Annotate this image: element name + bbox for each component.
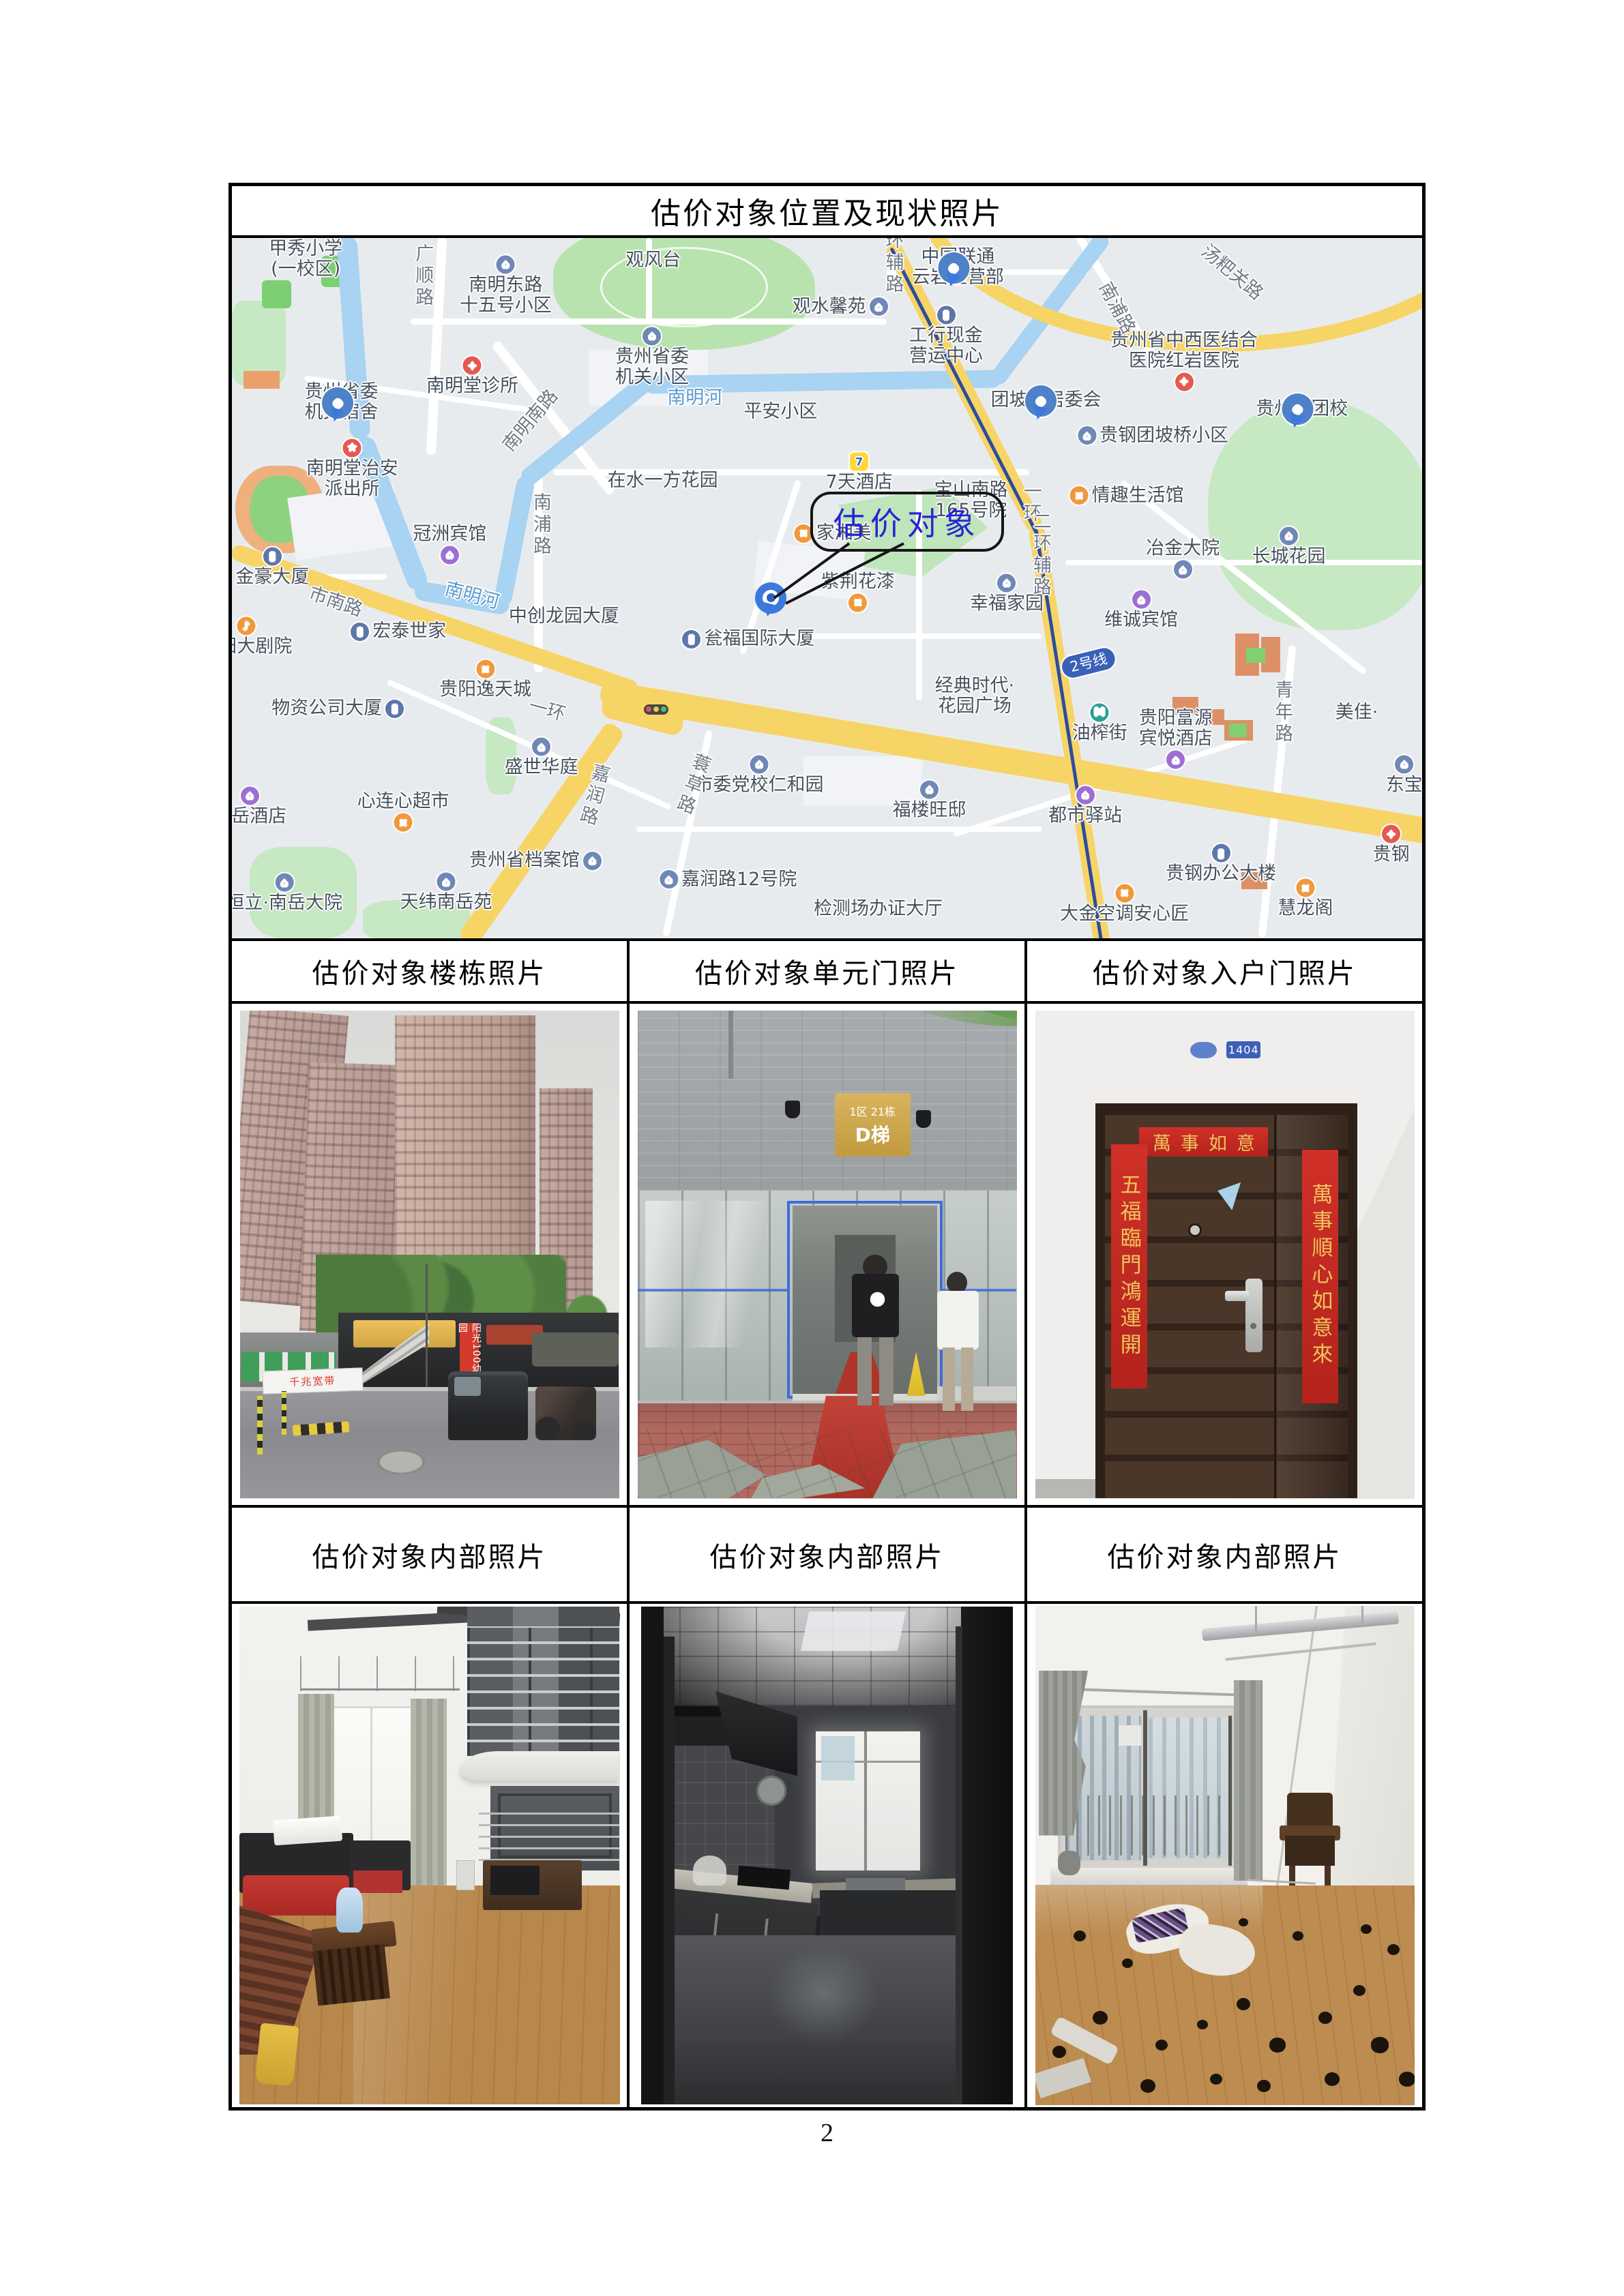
armchair-seat xyxy=(1285,1836,1334,1866)
header-unit-door-photo: 估价对象单元门照片 xyxy=(630,941,1024,1001)
location-map-cell: 甲秀小学(一校区)广顺路⌂南明东路十五号小区观风台观水馨苑⌂●中国联通云岩经营部… xyxy=(232,238,1422,938)
debris xyxy=(1035,1606,1042,1611)
sofa-red-cushion xyxy=(243,1875,349,1915)
cell-interior-photo-2 xyxy=(630,1604,1024,2107)
keyboard xyxy=(273,1816,343,1845)
curtain xyxy=(1234,1680,1263,1880)
pergola xyxy=(532,1332,619,1367)
curtain-rod-hangers xyxy=(300,1656,460,1691)
door-number-plate: 1404 xyxy=(1226,1041,1260,1059)
light-pool xyxy=(767,1945,879,2044)
person-legs xyxy=(857,1337,894,1405)
photo-interior-kitchen xyxy=(641,1607,1013,2104)
door-frame xyxy=(641,1607,664,2104)
header-interior-photo-1: 估价对象内部照片 xyxy=(232,1508,627,1601)
window-sill xyxy=(1050,1868,1247,1885)
cell-interior-photo-3 xyxy=(1027,1604,1422,2107)
curtain-tie xyxy=(1058,1851,1080,1876)
sofa-red-cushion xyxy=(353,1870,403,1893)
loft-slab xyxy=(460,1751,619,1781)
scooters xyxy=(535,1386,596,1440)
curtain-rod xyxy=(300,1688,460,1690)
bollard xyxy=(257,1396,263,1455)
light-rod xyxy=(1361,1606,1363,1626)
daisy-print xyxy=(869,1291,886,1308)
glass-reflection xyxy=(645,1201,774,1347)
appraisal-callout: 估价对象 xyxy=(810,492,1004,552)
cell-interior-photo-1 xyxy=(232,1604,627,2107)
white-banner: 千兆宽带 xyxy=(262,1367,363,1394)
tv-panel xyxy=(490,1866,540,1896)
couplet-right: 萬事順心如意來 xyxy=(1302,1150,1338,1403)
door-frame xyxy=(664,1637,675,2104)
coffee-table-slats xyxy=(312,1944,390,2006)
door-plate xyxy=(1190,1042,1217,1058)
lock-plate xyxy=(1245,1279,1263,1352)
ac-unit xyxy=(1119,1725,1141,1745)
header-interior-photo-3: 估价对象内部照片 xyxy=(1027,1508,1422,1601)
window-view xyxy=(821,1736,855,1781)
table-title: 估价对象位置及现状照片 xyxy=(232,186,1422,235)
yellow-stool xyxy=(255,2023,299,2087)
header-building-photo: 估价对象楼栋照片 xyxy=(232,941,627,1001)
brick-wall xyxy=(638,1011,1017,1191)
manhole xyxy=(377,1450,426,1474)
photo-table: 估价对象位置及现状照片 xyxy=(228,183,1426,2111)
header-entry-door-photo: 估价对象入户门照片 xyxy=(1027,941,1422,1001)
curtain xyxy=(411,1699,447,1893)
blue-tape xyxy=(638,1289,789,1292)
door-handle xyxy=(1225,1291,1250,1300)
location-map: 甲秀小学(一校区)广顺路⌂南明东路十五号小区观风台观水馨苑⌂●中国联通云岩经营部… xyxy=(232,238,1422,938)
window-mullion xyxy=(864,1731,867,1870)
person-head xyxy=(947,1272,968,1294)
loft-railing xyxy=(467,1626,619,1756)
sink xyxy=(846,1878,905,1890)
pipe xyxy=(728,1011,733,1079)
wall-lantern xyxy=(785,1101,800,1118)
balcony-railing xyxy=(1065,1795,1232,1855)
window-mullion xyxy=(1143,1710,1147,1865)
photo-interior-living-room xyxy=(239,1607,620,2104)
water-jug xyxy=(336,1888,363,1933)
couplet-top: 萬事如意 xyxy=(1139,1127,1268,1157)
page-number: 2 xyxy=(228,2118,1426,2148)
light-rod xyxy=(1255,1606,1257,1636)
slab-joints xyxy=(638,1430,1017,1498)
door-edge xyxy=(956,1626,963,2104)
wall-clock xyxy=(756,1776,786,1806)
window-mullion xyxy=(1228,1716,1232,1866)
appraisal-callout-text: 估价对象 xyxy=(833,499,981,544)
photo-building-exterior: 阳光100幼儿园 千兆宽带 xyxy=(240,1011,619,1499)
van-window xyxy=(454,1377,481,1397)
couplet-left: 五福臨門鴻運開 xyxy=(1111,1144,1147,1388)
header-interior-photo-2: 估价对象内部照片 xyxy=(630,1508,1024,1601)
keyhole xyxy=(1250,1323,1256,1329)
callout-tail xyxy=(232,238,1422,938)
person-white-shirt xyxy=(937,1291,979,1350)
photo-entry-door: 1404 萬事如意 五福臨門鴻運開 萬事順心如意來 xyxy=(1035,1011,1415,1499)
table-title-text: 估价对象位置及现状照片 xyxy=(651,189,1003,233)
cell-building-photo: 阳光100幼儿园 千兆宽带 xyxy=(232,1004,627,1505)
wall-lantern xyxy=(916,1110,931,1128)
bollard xyxy=(282,1391,287,1435)
person-legs xyxy=(943,1347,973,1411)
unit-sign: 1区 21栋 D梯 xyxy=(835,1093,911,1157)
photo-interior-room xyxy=(1035,1606,1415,2106)
cell-entry-door-photo: 1404 萬事如意 五福臨門鴻運開 萬事順心如意來 xyxy=(1027,1004,1422,1505)
door-frame xyxy=(961,1607,1013,2104)
lamp-post xyxy=(426,1264,428,1391)
rice-cooker xyxy=(693,1855,726,1885)
peephole xyxy=(1190,1225,1200,1235)
photo-unit-entrance: 1区 21栋 D梯 xyxy=(638,1011,1017,1499)
cell-unit-door-photo: 1区 21栋 D梯 xyxy=(630,1004,1024,1505)
heater xyxy=(456,1860,475,1890)
